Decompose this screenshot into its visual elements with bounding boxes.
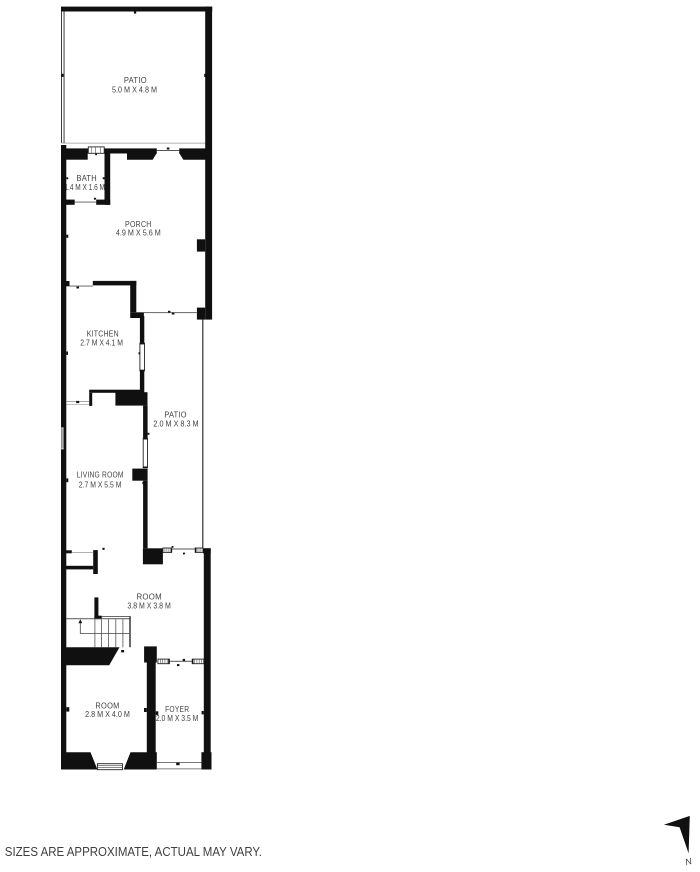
svg-text:2.8 M X 4.0 M: 2.8 M X 4.0 M (85, 710, 130, 719)
svg-text:LIVING ROOM: LIVING ROOM (77, 471, 124, 480)
svg-text:1.4 M X 1.6 M: 1.4 M X 1.6 M (64, 183, 105, 192)
svg-text:5.0 M X 4.8 M: 5.0 M X 4.8 M (112, 85, 157, 94)
svg-text:KITCHEN: KITCHEN (87, 330, 119, 339)
svg-text:BATH: BATH (76, 174, 97, 183)
svg-text:ROOM: ROOM (95, 701, 119, 710)
svg-text:ROOM: ROOM (137, 592, 162, 601)
svg-text:PATIO: PATIO (164, 411, 186, 420)
svg-text:2.7 M X 4.1 M: 2.7 M X 4.1 M (80, 339, 123, 348)
svg-text:PATIO: PATIO (124, 76, 147, 85)
svg-text:4.9 M X 5.6 M: 4.9 M X 5.6 M (116, 228, 161, 237)
svg-text:SIZES ARE APPROXIMATE, ACTUAL: SIZES ARE APPROXIMATE, ACTUAL MAY VARY. (5, 844, 262, 859)
svg-text:2.0 M X 3.5 M: 2.0 M X 3.5 M (156, 714, 199, 723)
svg-text:2.0 M X 8.3 M: 2.0 M X 8.3 M (153, 420, 198, 429)
svg-text:2.7 M X 5.5 M: 2.7 M X 5.5 M (79, 480, 122, 489)
svg-text:3.8 M X 3.8 M: 3.8 M X 3.8 M (127, 601, 171, 610)
